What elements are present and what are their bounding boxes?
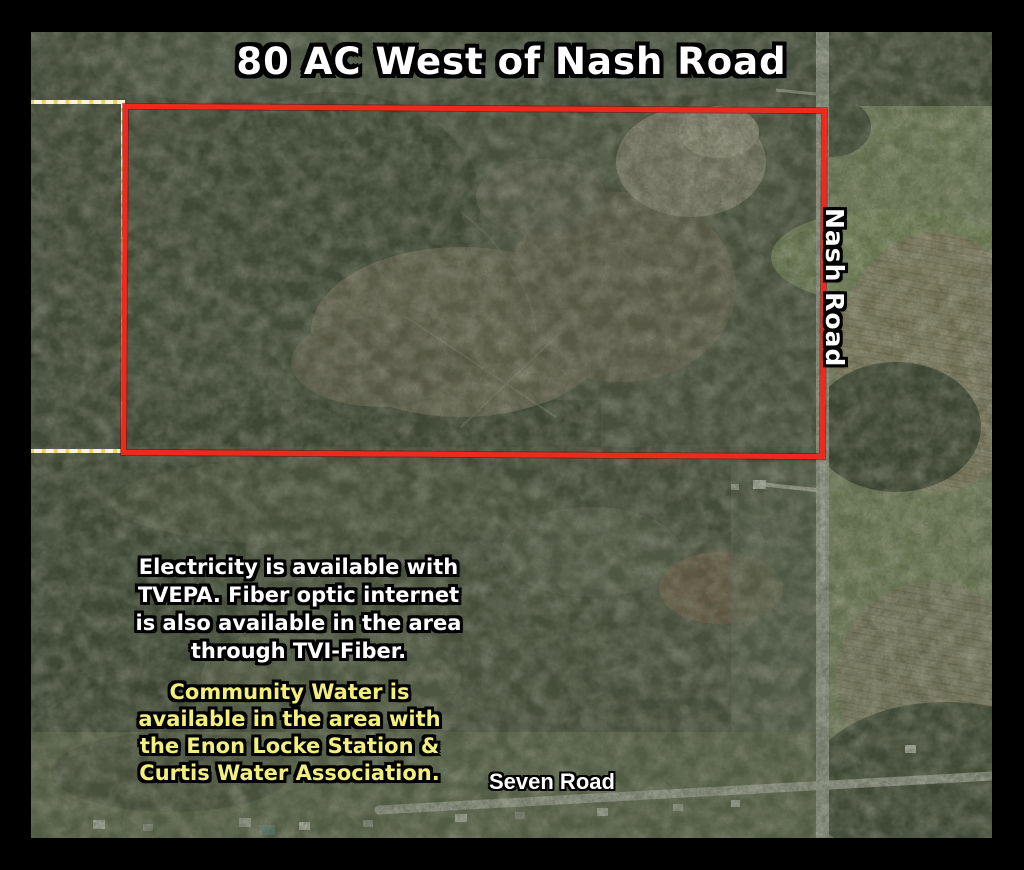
seven-road-label: Seven Road — [489, 769, 615, 795]
water-note: Community Water is available in the area… — [117, 679, 462, 787]
aerial-photo: 80 AC West of Nash Road Nash Road Electr… — [31, 32, 992, 838]
page-title: 80 AC West of Nash Road — [31, 40, 992, 83]
electricity-note: Electricity is available with TVEPA. Fib… — [126, 553, 471, 665]
nash-road-label: Nash Road — [820, 208, 849, 367]
image-frame: 80 AC West of Nash Road Nash Road Electr… — [0, 0, 1024, 870]
